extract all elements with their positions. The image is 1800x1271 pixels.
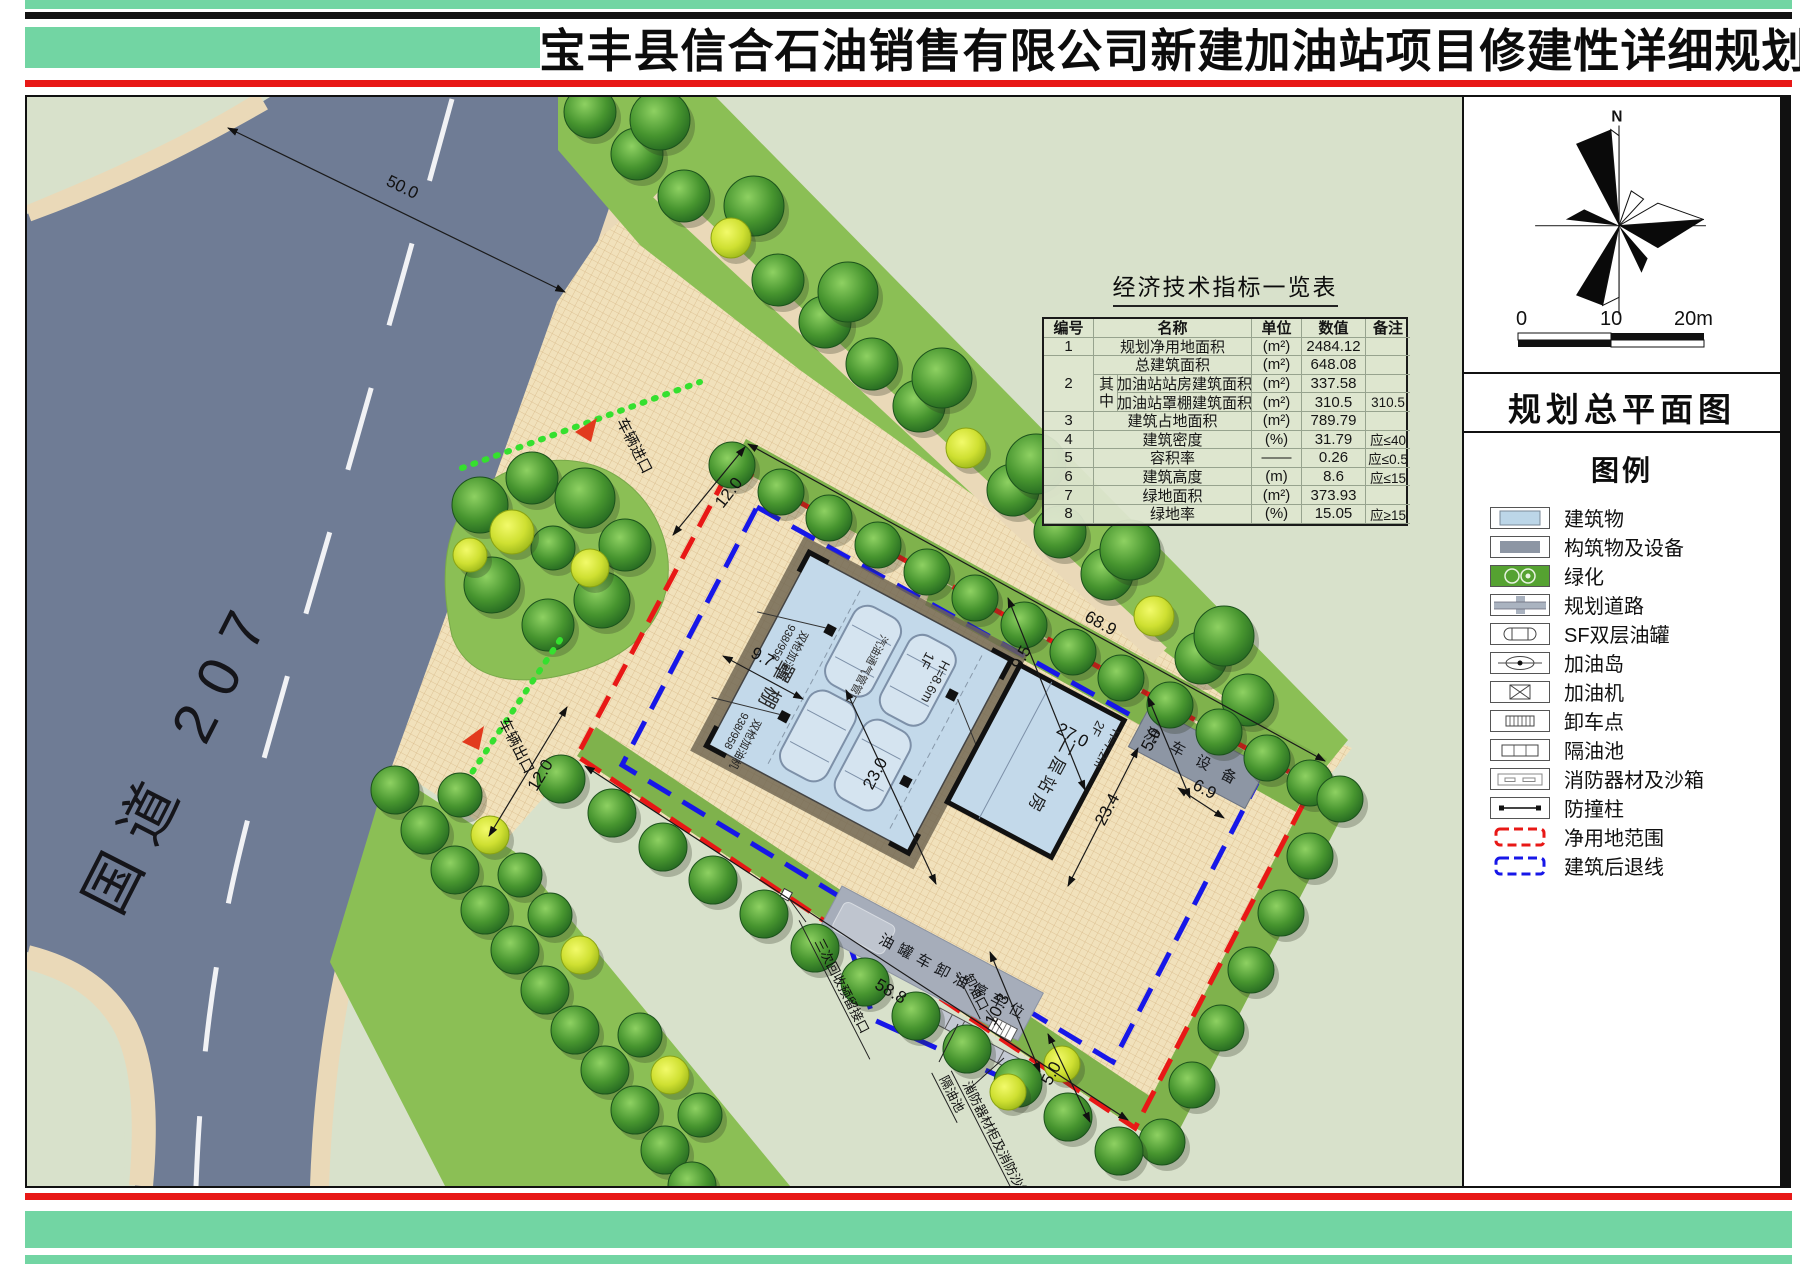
header-red-rule [25, 80, 1792, 87]
site-boundary-symbol [1490, 826, 1550, 848]
cell: (%) [1252, 431, 1302, 450]
legend-item-structure: 构筑物及设备 [1490, 532, 1770, 561]
cell: 2484.12 [1302, 338, 1366, 357]
bollard-symbol [1490, 797, 1550, 819]
legend-item-tank: SF双层油罐 [1490, 619, 1770, 648]
legend-item-site-boundary: 净用地范围 [1490, 822, 1770, 851]
cell: 绿地面积 [1094, 486, 1252, 505]
road-symbol [1490, 594, 1550, 616]
greenery-symbol [1490, 565, 1550, 587]
legend-item-dispenser: 加油机 [1490, 677, 1770, 706]
cell: 648.08 [1302, 356, 1366, 375]
cell [1366, 412, 1410, 431]
separator-symbol [1490, 739, 1550, 761]
legend-item-setback-line: 建筑后退线 [1490, 851, 1770, 880]
scale-tick: 20m [1674, 309, 1713, 330]
legend-item-bollard: 防撞柱 [1490, 793, 1770, 822]
north-compass: N [1514, 105, 1724, 330]
dispenser-symbol [1490, 681, 1550, 703]
tank-symbol [1490, 623, 1550, 645]
fire-symbol [1490, 768, 1550, 790]
legend-item-island: 加油岛 [1490, 648, 1770, 677]
cell [1366, 486, 1410, 505]
legend-item-unloading: 卸车点 [1490, 706, 1770, 735]
cell: 5 [1044, 449, 1094, 468]
cell [1366, 356, 1410, 375]
header-green-block [25, 27, 540, 68]
cell: 7 [1044, 486, 1094, 505]
plan-title: 规划总平面图 [1464, 383, 1780, 431]
cell: 2 [1044, 356, 1094, 412]
cell: 建筑密度 [1094, 431, 1252, 450]
cell: 建筑占地面积 [1094, 412, 1252, 431]
site-plan-drawing: 国道 207 停车位 洗车设备 [27, 97, 1462, 1186]
cell: 容积率 [1094, 449, 1252, 468]
cell: 789.79 [1302, 412, 1366, 431]
cell: 3 [1044, 412, 1094, 431]
col-header: 名称 [1094, 319, 1252, 338]
cell: 应≥15 [1366, 505, 1410, 524]
cell: 8.6 [1302, 468, 1366, 487]
legend-title: 图例 [1464, 449, 1780, 489]
footer-green-band [25, 1211, 1792, 1248]
indicator-table: 经济技术指标一览表 编号 名称 单位 数值 备注 1 规划净用地面积 (m²) … [1042, 268, 1408, 526]
indicator-table-grid: 编号 名称 单位 数值 备注 1 规划净用地面积 (m²) 2484.12 2 … [1042, 317, 1408, 526]
top-green-strip [25, 0, 1792, 9]
cell: (m) [1252, 468, 1302, 487]
cell: 31.79 [1302, 431, 1366, 450]
cell: 337.58 [1302, 375, 1366, 394]
cell: 应≤15 [1366, 468, 1410, 487]
cell: 373.93 [1302, 486, 1366, 505]
cell: (m²) [1252, 393, 1302, 412]
col-header: 备注 [1366, 319, 1410, 338]
cell: 8 [1044, 505, 1094, 524]
cell: 310.5 [1366, 393, 1410, 412]
col-header: 数值 [1302, 319, 1366, 338]
north-label: N [1611, 108, 1622, 125]
cell: (m²) [1252, 486, 1302, 505]
legend-item-separator: 隔油池 [1490, 735, 1770, 764]
cell: 加油站站房建筑面积 [1118, 375, 1252, 394]
cell: 310.5 [1302, 393, 1366, 412]
footer-green-line [25, 1255, 1792, 1264]
cell: 1 [1044, 338, 1094, 357]
cell: (m²) [1252, 375, 1302, 394]
cell: 15.05 [1302, 505, 1366, 524]
cell: (%) [1252, 505, 1302, 524]
indicator-table-title: 经济技术指标一览表 [1113, 268, 1338, 307]
cell: 0.26 [1302, 449, 1366, 468]
cell-group: 其中 [1094, 375, 1118, 412]
legend-item-building: 建筑物 [1490, 503, 1770, 532]
cell: 规划净用地面积 [1094, 338, 1252, 357]
sidebar: N 0 10 20m 规划总平面图 图例 [1462, 97, 1780, 1186]
legend-list: 建筑物 构筑物及设备 绿化 规划道路 SF双层油罐 [1490, 503, 1770, 880]
cell: 加油站罩棚建筑面积 [1118, 393, 1252, 412]
cell: 应≤40 [1366, 431, 1410, 450]
legend-item-greenery: 绿化 [1490, 561, 1770, 590]
sidebar-divider [1464, 431, 1780, 433]
drawing-sheet: 宝丰县信合石油销售有限公司新建加油站项目修建性详细规划 [0, 0, 1800, 1271]
page-title: 宝丰县信合石油销售有限公司新建加油站项目修建性详细规划 [556, 20, 1792, 76]
cell: 应≤0.5 [1366, 449, 1410, 468]
cell: —— [1252, 449, 1302, 468]
col-header: 编号 [1044, 319, 1094, 338]
island-symbol [1490, 652, 1550, 674]
cell: 6 [1044, 468, 1094, 487]
col-header: 单位 [1252, 319, 1302, 338]
scale-tick: 10 [1600, 309, 1622, 330]
structure-symbol [1490, 536, 1550, 558]
cell: (m²) [1252, 412, 1302, 431]
scale-bar: 0 10 20m [1514, 309, 1724, 354]
sheet-right-edge [1780, 95, 1791, 1188]
cell: 建筑高度 [1094, 468, 1252, 487]
cell: 4 [1044, 431, 1094, 450]
cell: (m²) [1252, 356, 1302, 375]
scale-tick: 0 [1516, 309, 1527, 330]
cell [1366, 375, 1410, 394]
cell: 绿地率 [1094, 505, 1252, 524]
cell: 总建筑面积 [1094, 356, 1252, 375]
cell [1366, 338, 1410, 357]
cell: (m²) [1252, 338, 1302, 357]
setback-line-symbol [1490, 855, 1550, 877]
footer-red-rule [25, 1193, 1792, 1200]
sidebar-divider [1464, 372, 1780, 374]
legend-item-fire: 消防器材及沙箱 [1490, 764, 1770, 793]
legend-item-road: 规划道路 [1490, 590, 1770, 619]
unloading-symbol [1490, 710, 1550, 732]
building-symbol [1490, 507, 1550, 529]
